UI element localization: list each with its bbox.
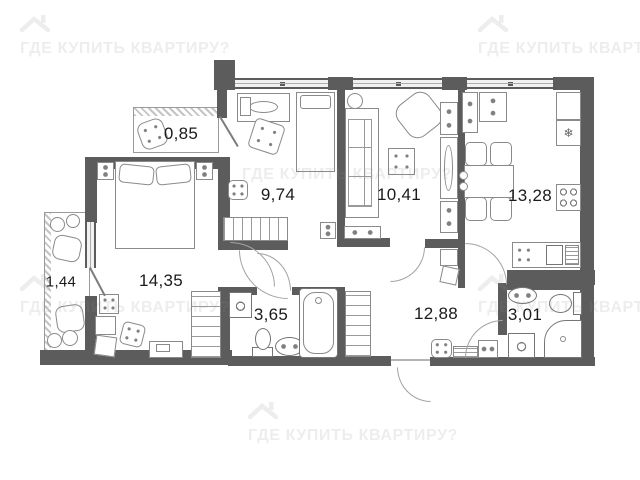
nightstand	[97, 162, 114, 180]
media-cabinet	[440, 201, 458, 233]
house-roof-icon	[20, 14, 50, 32]
snowflake-icon: ❄	[556, 120, 581, 146]
wall	[337, 287, 345, 365]
bed-pillow	[300, 95, 331, 109]
window-kitchen	[467, 78, 553, 89]
tv	[156, 344, 170, 352]
plant	[50, 217, 65, 232]
stool	[459, 171, 468, 180]
kitchen-cabinet	[462, 92, 478, 133]
kitchen-sink	[546, 245, 563, 265]
counter	[556, 92, 581, 120]
nightstand	[196, 162, 213, 180]
dining-table	[464, 165, 514, 198]
desk-drawer	[240, 97, 251, 116]
chair	[119, 321, 147, 349]
square-table	[99, 294, 119, 314]
door-arc-living	[390, 247, 425, 282]
watermark: ГДЕ КУПИТЬ КВАРТИРУ?	[20, 14, 230, 57]
door-arc-wc	[465, 320, 503, 358]
wall	[85, 157, 97, 223]
shower-drain	[560, 336, 566, 342]
wall-bottom-outer	[430, 357, 595, 366]
tv	[444, 145, 453, 191]
entrance-threshold	[391, 359, 430, 361]
washing-machine	[508, 333, 535, 358]
room-label-bedroom2: 14,35	[139, 271, 183, 291]
floor-lamp	[347, 93, 363, 109]
wall	[217, 90, 227, 118]
room-label-bedroom1: 9,74	[261, 185, 295, 205]
side-table	[228, 180, 248, 200]
coffee-table	[388, 148, 415, 175]
window-living	[353, 78, 442, 89]
room-label-loggia: 0,85	[164, 124, 198, 144]
bed-pillow	[155, 163, 192, 186]
room-label-balcony: 1,44	[46, 274, 76, 291]
toilet	[255, 328, 271, 350]
toilet	[549, 294, 572, 313]
watermark: ГДЕ КУПИТЬ КВАРТИРУ?	[478, 14, 640, 57]
window-bedroom1	[235, 78, 328, 89]
bench	[431, 339, 452, 358]
wall	[214, 60, 235, 90]
room-label-bathroom: 3,65	[254, 305, 288, 325]
toilet-tank	[573, 292, 582, 315]
counter-cabinet	[514, 244, 534, 266]
hall-cabinet	[440, 249, 458, 266]
wall-right-outer	[580, 77, 594, 366]
floor-plan: ❄ 0,85 9	[0, 0, 640, 480]
dish-rack	[565, 245, 579, 265]
hall-wardrobe	[345, 291, 371, 357]
room-label-kitchen: 13,28	[508, 186, 552, 206]
wall	[425, 239, 460, 248]
plant	[66, 214, 80, 228]
room-label-living: 10,41	[377, 185, 421, 205]
washing-machine	[229, 292, 252, 318]
bed-pillow	[118, 163, 155, 186]
chair	[465, 142, 487, 166]
wall	[337, 90, 345, 247]
armchair	[247, 117, 286, 156]
dresser	[94, 335, 118, 358]
chair	[490, 142, 512, 166]
wall	[553, 77, 583, 90]
balcony-door-leaf	[89, 267, 106, 296]
wardrobe	[191, 291, 221, 358]
dresser	[320, 222, 336, 239]
kitchen-cabinet	[479, 92, 507, 122]
bathtub-drain	[315, 297, 322, 304]
room-label-hallway: 12,88	[414, 304, 458, 324]
house-roof-icon	[248, 401, 278, 419]
door-arc-entrance	[397, 367, 431, 402]
watermark-text: ГДЕ КУПИТЬ КВАРТИРУ?	[478, 41, 640, 57]
house-roof-icon	[478, 14, 508, 32]
window-bedroom2-balcony	[85, 222, 96, 268]
wall	[442, 77, 467, 90]
stove	[556, 184, 581, 211]
dresser	[95, 316, 116, 335]
wall	[345, 238, 390, 247]
tv-dresser	[344, 226, 381, 239]
watermark: ГДЕ КУПИТЬ КВАРТИРУ?	[248, 401, 458, 444]
chair	[465, 197, 487, 221]
loggia-door-leaf	[219, 116, 239, 147]
door-arc-kitchen	[465, 243, 507, 285]
plant	[47, 333, 62, 348]
watermark-text: ГДЕ КУПИТЬ КВАРТИРУ?	[20, 41, 230, 57]
wc-sink	[508, 287, 537, 304]
plant	[62, 330, 78, 346]
loggia-glazing-hatch	[134, 108, 217, 116]
desk-chair	[249, 101, 278, 113]
media-cabinet	[440, 102, 458, 135]
hall-cabinet	[439, 265, 459, 285]
armchair	[391, 87, 447, 143]
wardrobe	[223, 217, 288, 241]
watermark-text: ГДЕ КУПИТЬ КВАРТИРУ?	[248, 428, 458, 444]
stool	[459, 182, 468, 191]
room-label-wc: 3,01	[508, 305, 542, 325]
wall	[328, 77, 353, 90]
sofa-cushions	[348, 119, 372, 207]
